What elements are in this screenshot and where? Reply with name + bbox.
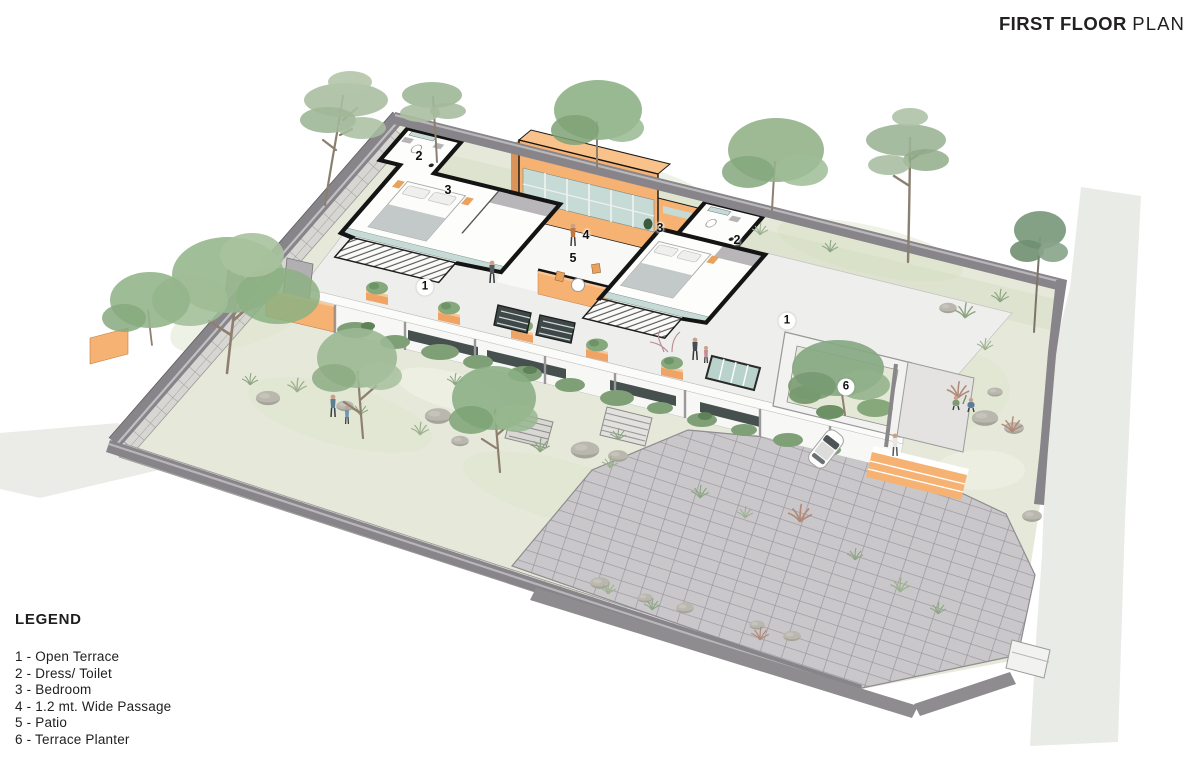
plan-room-number: 3 — [657, 221, 664, 235]
plan-room-number: 5 — [570, 251, 577, 265]
plan-room-number-circled: 1 — [417, 279, 434, 296]
plan-room-number: 2 — [734, 233, 741, 247]
indoor-plant — [644, 219, 653, 230]
title-secondary: PLAN — [1132, 13, 1185, 34]
legend-item: 4 - 1.2 mt. Wide Passage — [15, 699, 171, 716]
legend-item: 6 - Terrace Planter — [15, 732, 171, 749]
site-axonometric-illustration — [0, 0, 1200, 782]
legend-item: 3 - Bedroom — [15, 682, 171, 699]
plan-room-number-circled: 1 — [779, 313, 796, 330]
title-primary: FIRST FLOOR — [999, 13, 1127, 34]
drawing-title: FIRST FLOOR PLAN — [999, 13, 1185, 35]
plan-room-number: 2 — [416, 149, 423, 163]
first-floor-plan-sheet: 234532116 FIRST FLOOR PLAN LEGEND 1 - Op… — [0, 0, 1200, 782]
legend-item: 5 - Patio — [15, 715, 171, 732]
plan-room-number: 4 — [583, 228, 590, 242]
legend-heading: LEGEND — [15, 611, 171, 628]
legend: LEGEND 1 - Open Terrace2 - Dress/ Toilet… — [15, 611, 171, 749]
leafy-tree — [722, 118, 828, 210]
legend-items: 1 - Open Terrace2 - Dress/ Toilet3 - Bed… — [15, 649, 171, 749]
plan-room-number-circled: 6 — [838, 379, 855, 396]
legend-item: 2 - Dress/ Toilet — [15, 666, 171, 683]
legend-item: 1 - Open Terrace — [15, 649, 171, 666]
plan-room-number: 3 — [445, 183, 452, 197]
